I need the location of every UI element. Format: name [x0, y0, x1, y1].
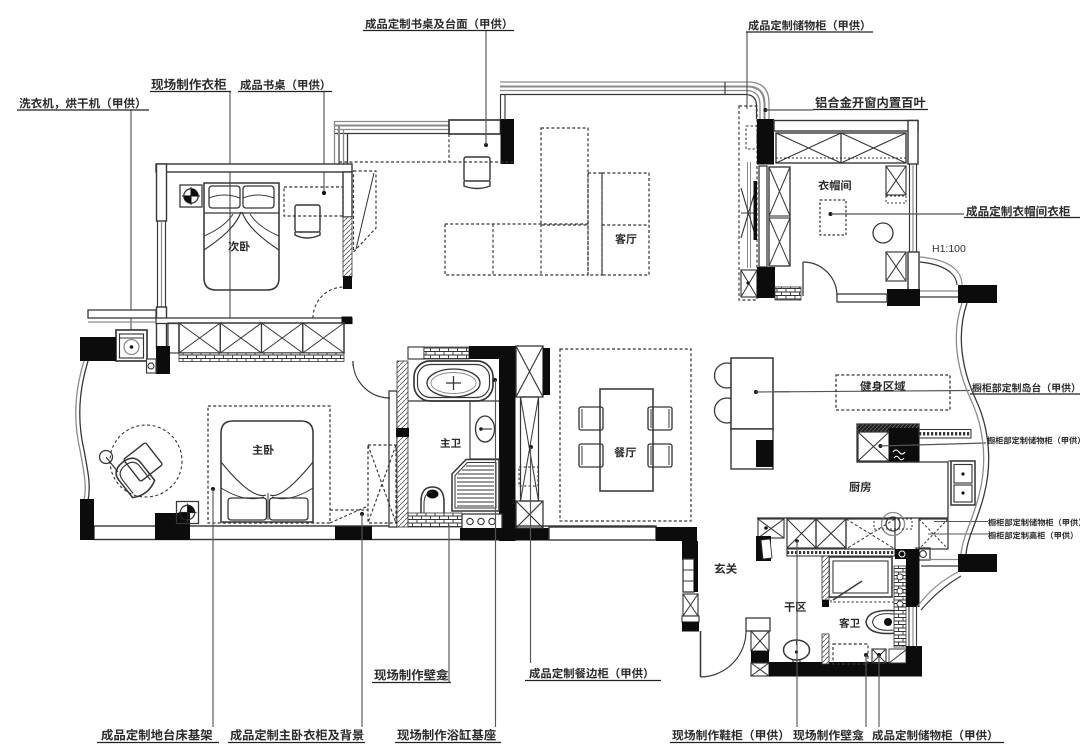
svg-text:H1:100: H1:100 [932, 243, 966, 255]
